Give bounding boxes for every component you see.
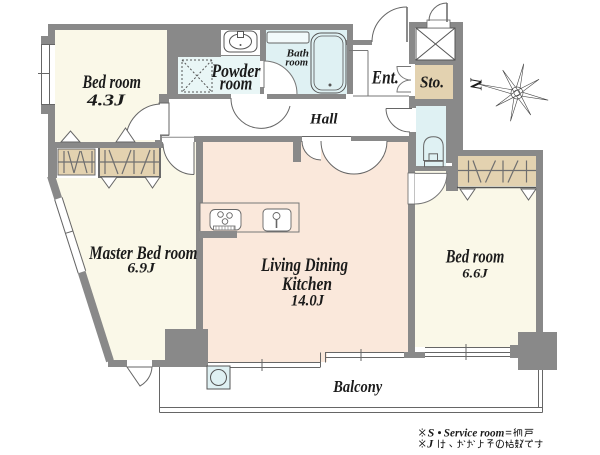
svg-text:6.9J: 6.9J (127, 261, 155, 277)
svg-text:room: room (285, 57, 308, 69)
svg-text:room: room (220, 75, 253, 95)
svg-text:Bed room: Bed room (445, 247, 504, 267)
svg-text:Service room: Service room (444, 426, 505, 440)
svg-text:14.0J: 14.0J (291, 293, 325, 310)
svg-text:J: J (426, 437, 434, 450)
svg-text:4.3J: 4.3J (86, 91, 126, 110)
svg-text:Sto.: Sto. (420, 73, 444, 92)
svg-text:6.6J: 6.6J (462, 266, 488, 281)
svg-text:Hall: Hall (309, 112, 338, 128)
svg-text:N: N (467, 77, 486, 91)
svg-text:Ent.: Ent. (371, 69, 399, 89)
svg-text:Living Dining: Living Dining (260, 256, 348, 276)
svg-text:Balcony: Balcony (332, 377, 382, 396)
